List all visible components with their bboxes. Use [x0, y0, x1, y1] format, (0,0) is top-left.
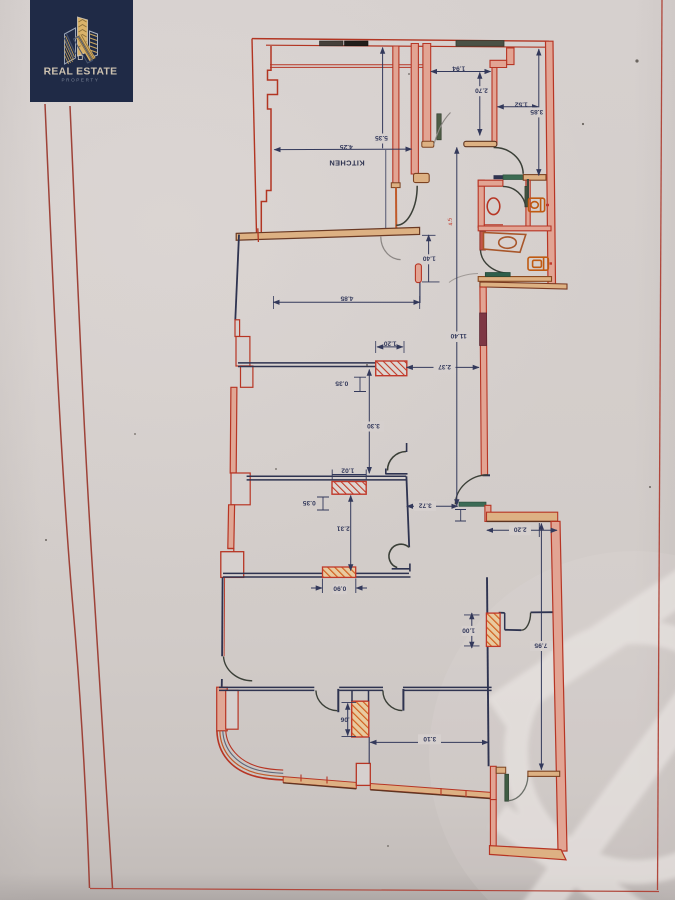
svg-text:PROPERTY: PROPERTY [62, 78, 100, 83]
svg-text:1.00: 1.00 [462, 626, 475, 633]
svg-text:2.31: 2.31 [337, 525, 350, 532]
svg-text:2.37: 2.37 [438, 363, 451, 370]
svg-text:1.94: 1.94 [452, 65, 465, 72]
svg-text:3.72: 3.72 [419, 501, 432, 508]
svg-text:4.5: 4.5 [447, 217, 454, 226]
svg-text:1.02: 1.02 [341, 467, 354, 474]
svg-text:3.85: 3.85 [530, 108, 543, 115]
svg-text:7.95: 7.95 [534, 642, 547, 649]
svg-text:2.70: 2.70 [475, 87, 488, 94]
svg-text:0.90: 0.90 [333, 585, 346, 592]
svg-text:11.40: 11.40 [450, 332, 466, 339]
svg-text:0.35: 0.35 [303, 499, 316, 506]
svg-text:2.20: 2.20 [513, 526, 526, 533]
svg-text:1.52: 1.52 [515, 101, 528, 108]
svg-text:3.10: 3.10 [423, 735, 436, 742]
svg-text:REAL ESTATE: REAL ESTATE [44, 67, 118, 78]
svg-text:4.85: 4.85 [340, 295, 353, 302]
svg-text:KITCHEN: KITCHEN [329, 158, 365, 167]
svg-text:0.35: 0.35 [335, 379, 348, 386]
svg-text:5.35: 5.35 [375, 134, 388, 141]
svg-text:1.20: 1.20 [383, 340, 396, 347]
svg-text:1.40: 1.40 [423, 255, 436, 262]
svg-text:3.30: 3.30 [367, 422, 380, 429]
svg-text:.06: .06 [340, 716, 349, 723]
svg-text:4.25: 4.25 [340, 143, 353, 150]
